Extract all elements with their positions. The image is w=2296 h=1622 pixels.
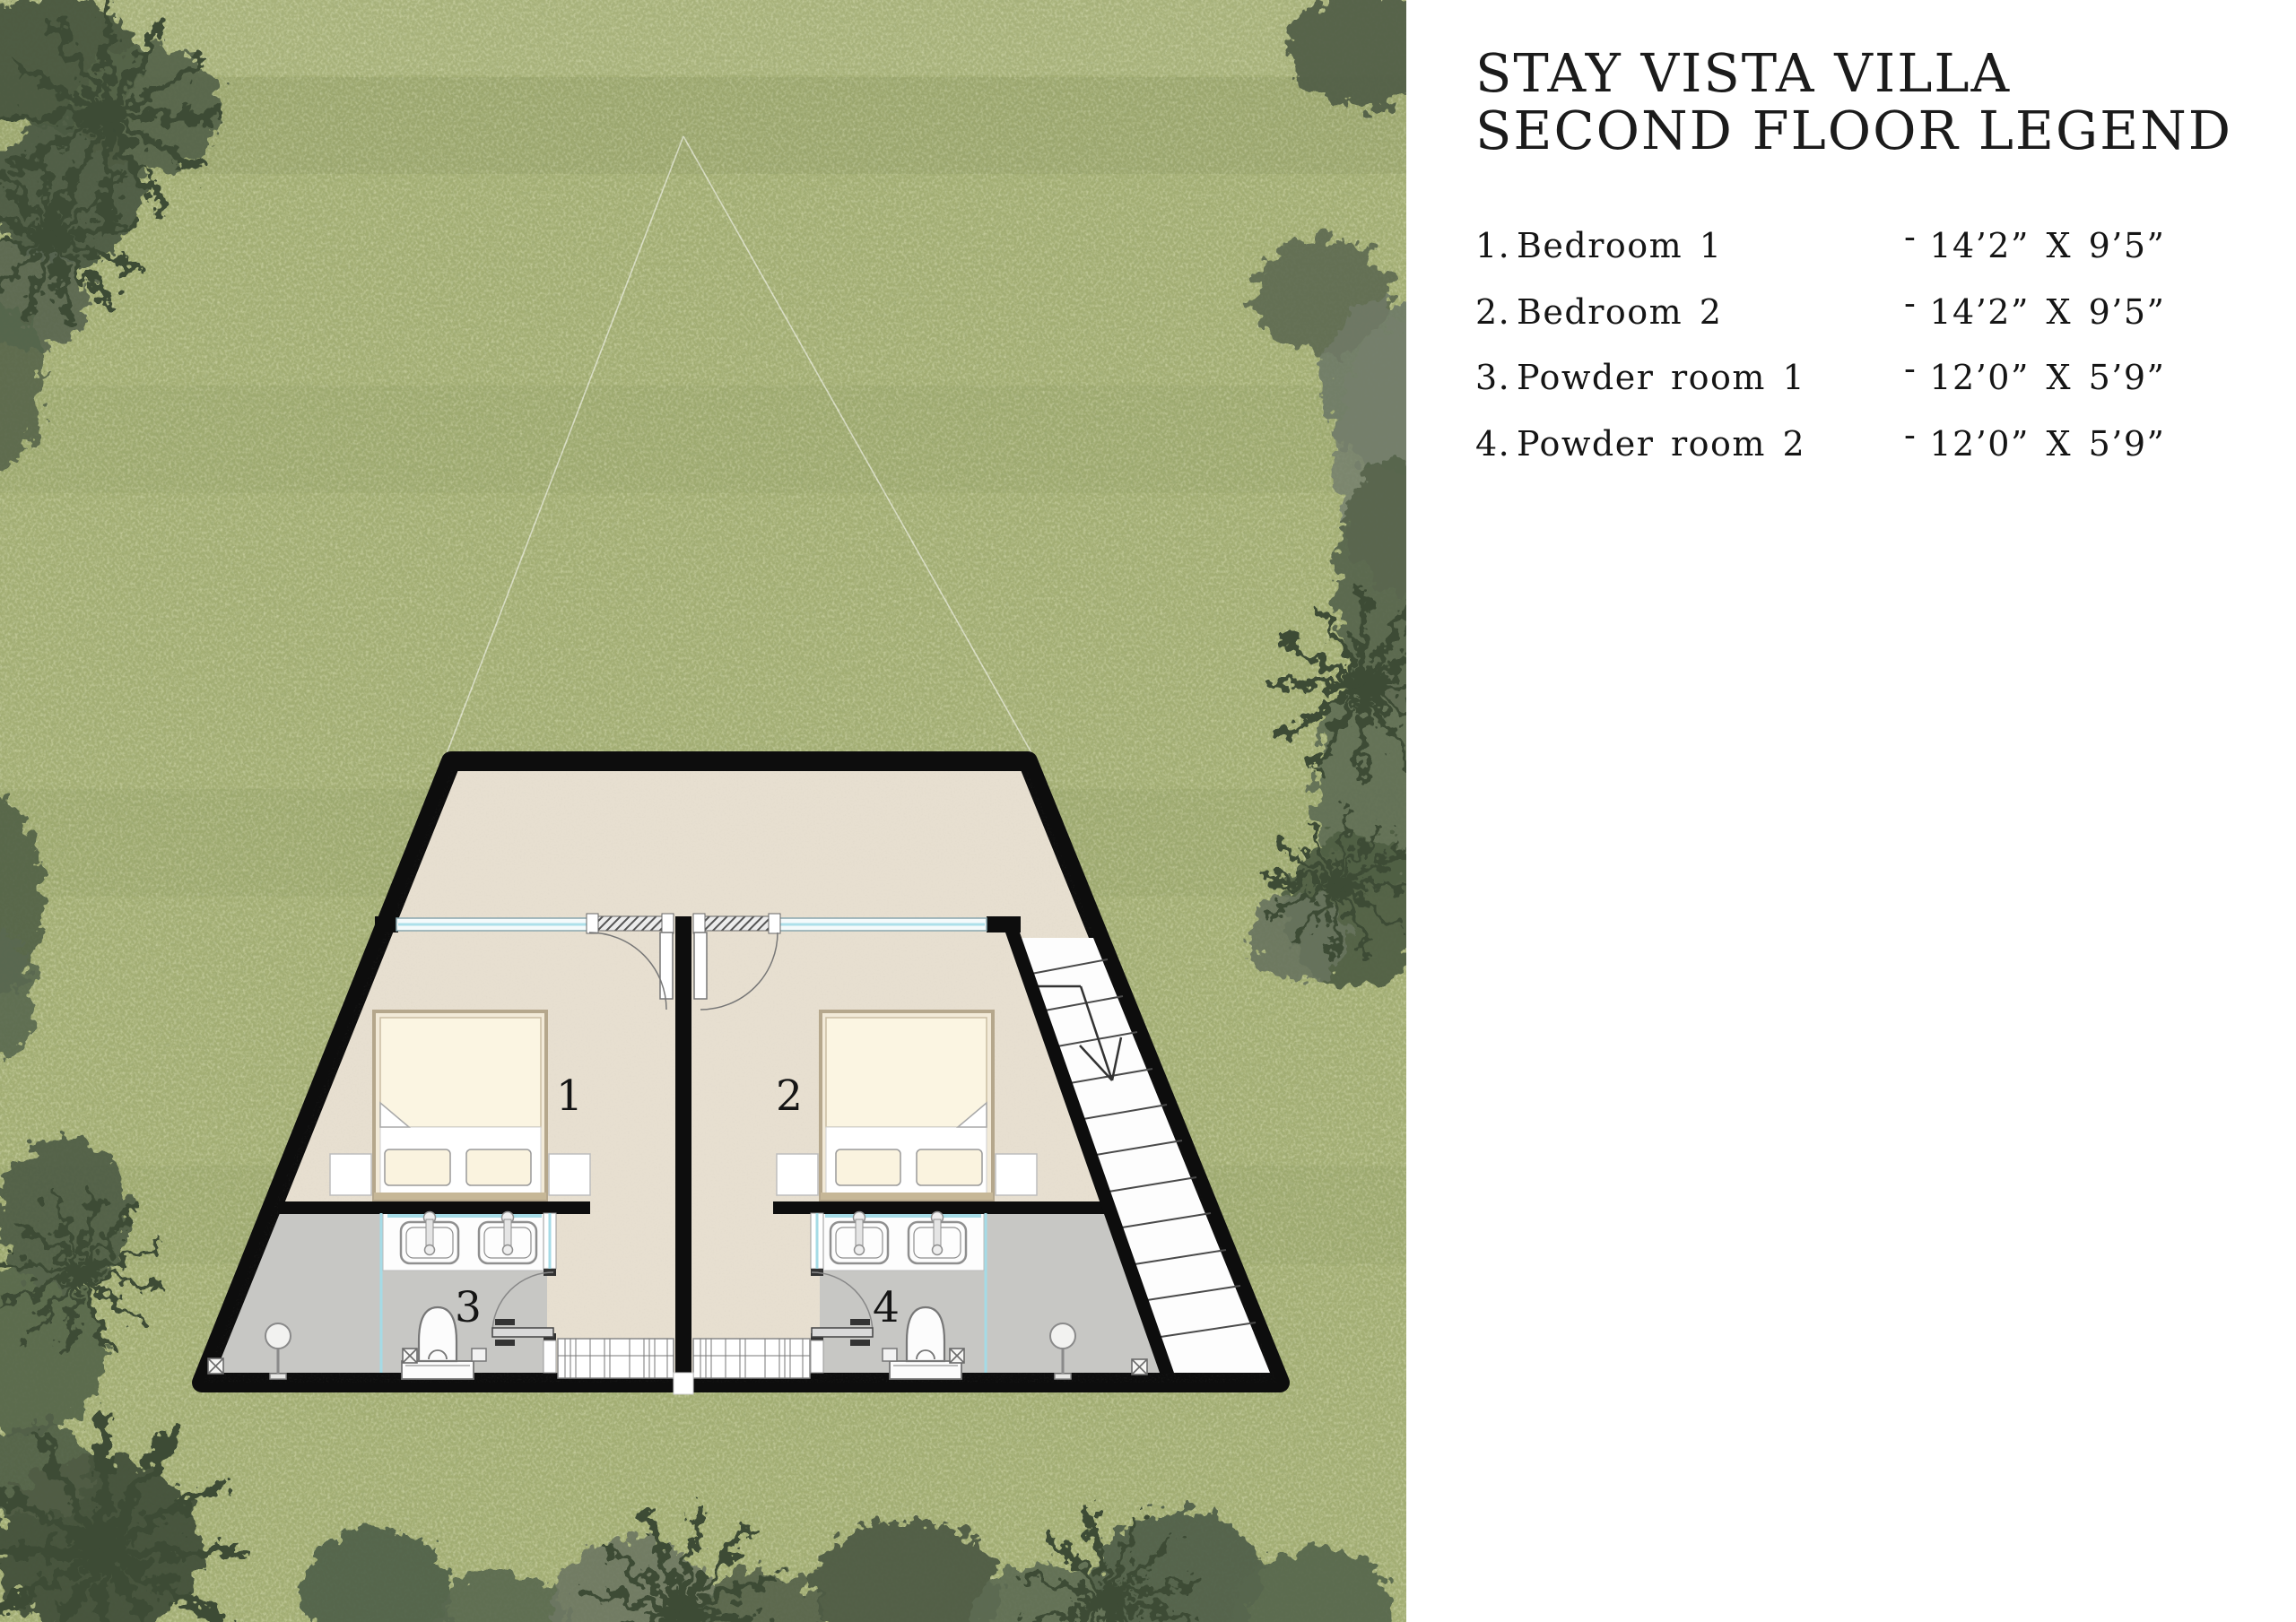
legend-item-powder-2: 4.Powder room 2 -12’0” X 5’9” [1475, 424, 2247, 490]
legend-title-line1: STAY VISTA VILLA [1475, 45, 2232, 102]
drain-icon [950, 1349, 964, 1363]
legend-item-name: Bedroom 1 [1517, 226, 1722, 265]
page-root: 1 2 3 4 STAY VISTA VILLA SECOND FLOOR LE… [0, 0, 2296, 1622]
floor-plan-svg: 1 2 3 4 [0, 0, 1406, 1622]
legend-item-dimensions: 12’0” X 5’9” [1929, 358, 2165, 397]
legend-item-bedroom-1: 1.Bedroom 1 -14’2” X 9’5” [1475, 226, 2247, 292]
bed-2-icon [821, 1011, 993, 1200]
legend-item-bedroom-2: 2.Bedroom 2 -14’2” X 9’5” [1475, 292, 2247, 359]
legend-list: 1.Bedroom 1 -14’2” X 9’5” 2.Bedroom 2 -1… [1475, 226, 2247, 490]
legend-item-dash: - [1904, 415, 1917, 455]
legend-item-powder-1: 3.Powder room 1 -12’0” X 5’9” [1475, 358, 2247, 424]
wardrobe-2 [693, 1339, 810, 1378]
legend-title: STAY VISTA VILLA SECOND FLOOR LEGEND [1475, 45, 2232, 160]
nightstand [996, 1154, 1037, 1195]
legend-item-dimensions: 14’2” X 9’5” [1929, 292, 2165, 332]
legend-title-line2: SECOND FLOOR LEGEND [1475, 102, 2232, 160]
bedroom2-powder-wall [773, 1201, 1110, 1214]
legend-item-name: Powder room 1 [1517, 358, 1805, 397]
legend-item-dimensions: 12’0” X 5’9” [1929, 424, 2165, 464]
legend-item-number: 1. [1475, 226, 1517, 265]
threshold-gap [674, 1373, 693, 1394]
room-label-bedroom-1: 1 [556, 1071, 583, 1121]
legend-item-dash: - [1904, 349, 1917, 388]
drain-icon [208, 1358, 223, 1374]
drain-icon [403, 1349, 417, 1363]
bedroom1-powder-wall [278, 1201, 590, 1214]
legend-item-number: 4. [1475, 424, 1517, 464]
legend-item-dimensions: 14’2” X 9’5” [1929, 226, 2165, 265]
legend-item-name: Powder room 2 [1517, 424, 1805, 464]
room-label-powder-2: 4 [873, 1283, 900, 1332]
nightstand [330, 1154, 371, 1195]
bed-1-icon [374, 1011, 546, 1200]
legend-item-name: Bedroom 2 [1517, 292, 1722, 332]
legend-item-number: 3. [1475, 358, 1517, 397]
drain-icon [1132, 1359, 1147, 1375]
legend-item-number: 2. [1475, 292, 1517, 332]
room-label-bedroom-2: 2 [776, 1071, 803, 1121]
room-label-powder-1: 3 [455, 1283, 482, 1332]
legend-panel: STAY VISTA VILLA SECOND FLOOR LEGEND 1.B… [1406, 0, 2296, 1622]
nightstand [549, 1154, 590, 1195]
party-wall [675, 916, 691, 1373]
site-plan-area: 1 2 3 4 [0, 0, 1406, 1622]
wardrobe-1 [558, 1339, 674, 1378]
legend-item-dash: - [1904, 217, 1917, 256]
nightstand [777, 1154, 818, 1195]
legend-item-dash: - [1904, 283, 1917, 323]
paper-holder-icon [472, 1349, 486, 1361]
paper-holder-icon [883, 1349, 897, 1361]
